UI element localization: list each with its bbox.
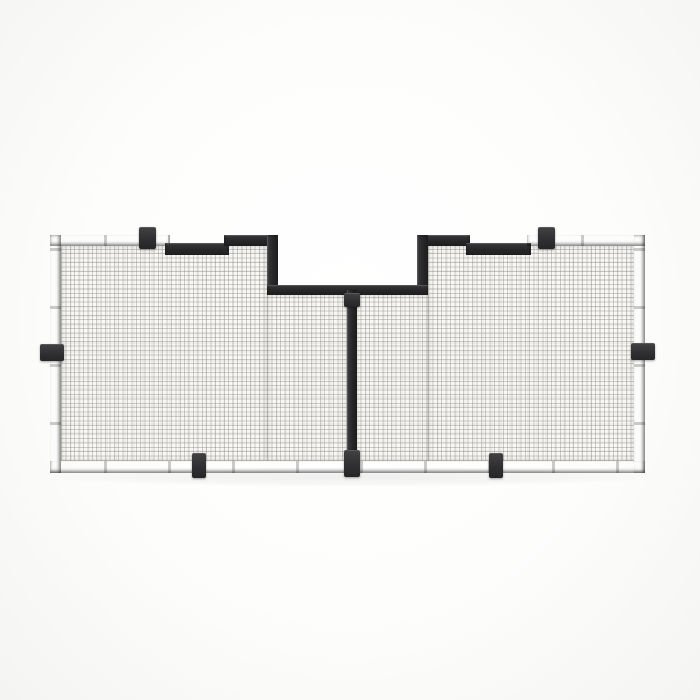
mesh-panel-left-under-cutout [267,294,347,461]
frame-top-rail-right-notch [466,243,531,255]
center-divider [347,290,357,466]
mounting-clip-bottom-left [192,453,206,478]
mounting-clip-top-right [538,227,555,249]
mesh-panel-left [61,246,267,461]
frame-top-rail-left-notch [165,243,229,255]
mesh-panel-right-under-cutout [356,294,428,461]
mesh-panel-right [428,246,634,461]
center-divider-collar [344,293,360,307]
product-photo-scene [0,0,700,700]
mounting-clip-left-side [40,344,64,361]
mounting-clip-bottom-right [489,453,503,478]
mounting-clip-top-left [139,227,156,249]
mounting-clip-right-side [631,343,655,360]
center-divider-foot [344,450,360,477]
